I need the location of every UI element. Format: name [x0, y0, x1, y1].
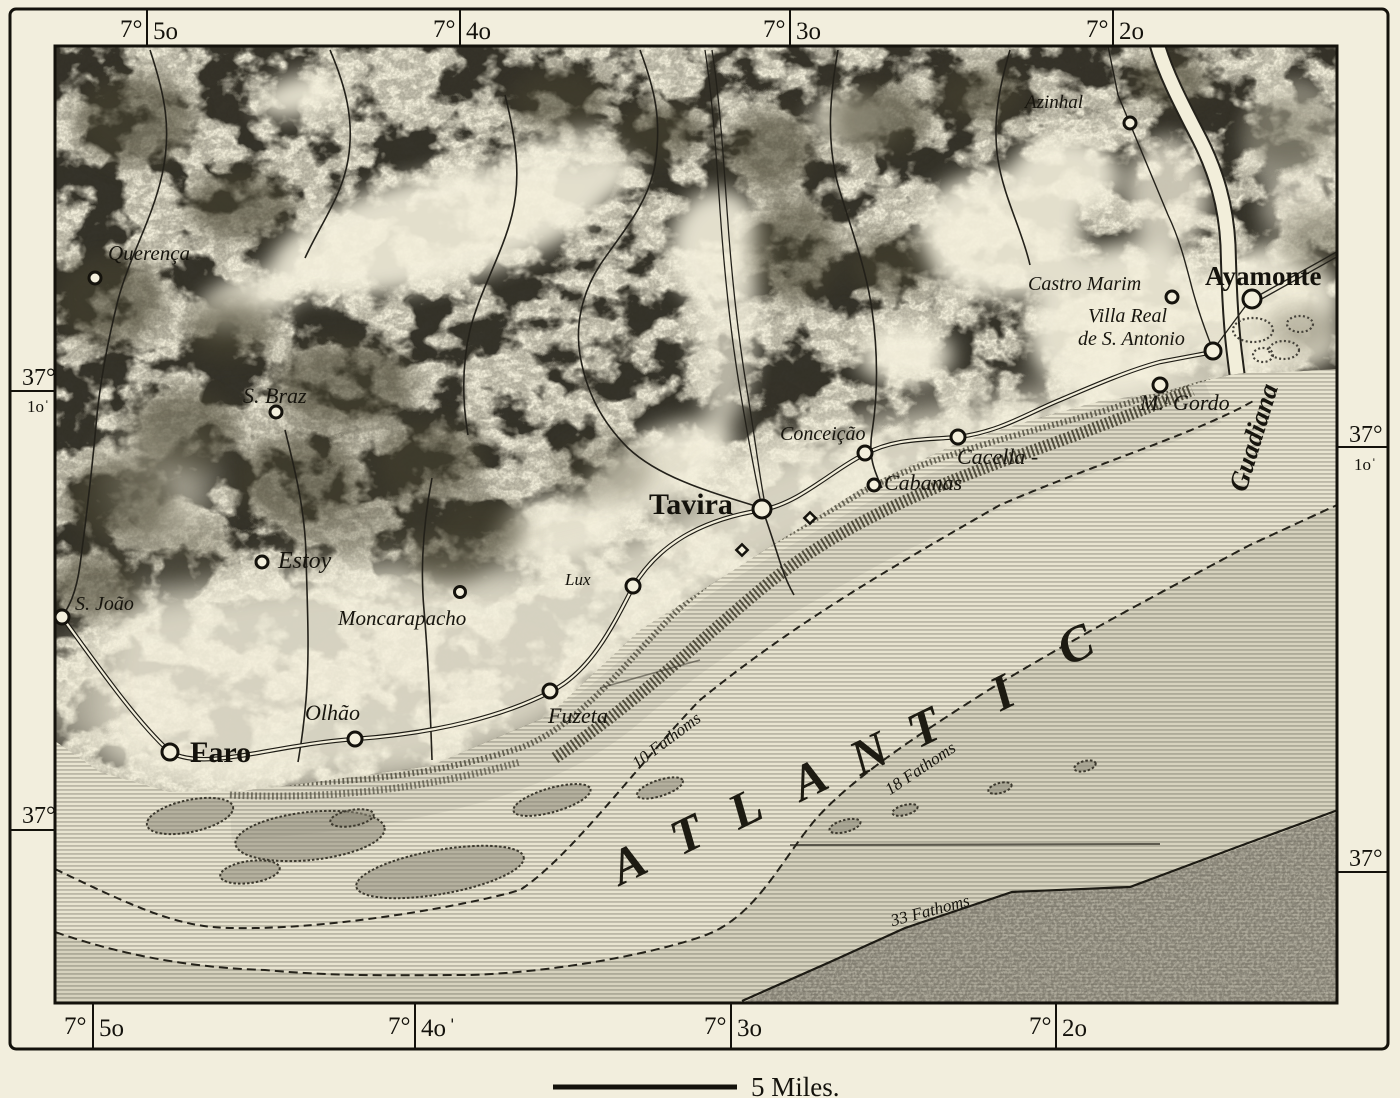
svg-text:7°: 7° [704, 1013, 727, 1040]
svg-text:1oˈ: 1oˈ [1354, 455, 1377, 474]
svg-text:Estoy: Estoy [277, 548, 332, 574]
svg-text:7°: 7° [763, 16, 786, 43]
svg-text:37°: 37° [1349, 846, 1383, 872]
svg-text:Cabanas: Cabanas [884, 470, 962, 495]
svg-text:7°: 7° [64, 1013, 87, 1040]
svg-text:Azinhal: Azinhal [1023, 92, 1083, 113]
svg-text:de S. Antonio: de S. Antonio [1078, 328, 1185, 350]
svg-text:1oˈ: 1oˈ [27, 397, 50, 416]
svg-text:7°: 7° [433, 16, 456, 43]
svg-text:7°: 7° [120, 16, 143, 43]
svg-text:5o: 5o [153, 18, 178, 45]
svg-text:3o: 3o [737, 1015, 762, 1042]
svg-text:S. Braz: S. Braz [243, 383, 307, 408]
svg-text:4o ˈ: 4o ˈ [421, 1015, 456, 1042]
svg-text:5o: 5o [99, 1015, 124, 1042]
svg-text:M.ᵗ Gordo: M.ᵗ Gordo [1139, 390, 1230, 415]
svg-text:37°: 37° [1349, 422, 1383, 448]
svg-text:Faro: Faro [190, 736, 251, 769]
svg-text:7°: 7° [388, 1013, 411, 1040]
svg-text:Tavira: Tavira [649, 488, 733, 521]
svg-text:Fuzeta: Fuzeta [547, 703, 608, 728]
svg-text:Villa Real: Villa Real [1088, 305, 1167, 327]
svg-text:Ayamonte: Ayamonte [1205, 261, 1321, 291]
svg-text:37°: 37° [22, 365, 56, 391]
svg-text:Castro Marim: Castro Marim [1028, 273, 1141, 295]
svg-text:Moncarapacho: Moncarapacho [337, 606, 466, 630]
svg-text:Lux: Lux [564, 570, 591, 589]
svg-text:Cacella -: Cacella - [957, 444, 1038, 469]
svg-text:7°: 7° [1086, 16, 1109, 43]
svg-text:7°: 7° [1029, 1013, 1052, 1040]
svg-text:3o: 3o [796, 18, 821, 45]
svg-text:2o: 2o [1119, 18, 1144, 45]
svg-text:Olhão: Olhão [305, 700, 360, 725]
svg-text:Querença: Querença [108, 241, 190, 265]
svg-text:S. João: S. João [75, 593, 134, 615]
svg-text:2o: 2o [1062, 1015, 1087, 1042]
svg-text:5 Miles.: 5 Miles. [751, 1072, 840, 1098]
svg-text:Conceição: Conceição [780, 423, 866, 445]
svg-text:4o: 4o [466, 18, 491, 45]
svg-text:37°: 37° [22, 803, 56, 829]
